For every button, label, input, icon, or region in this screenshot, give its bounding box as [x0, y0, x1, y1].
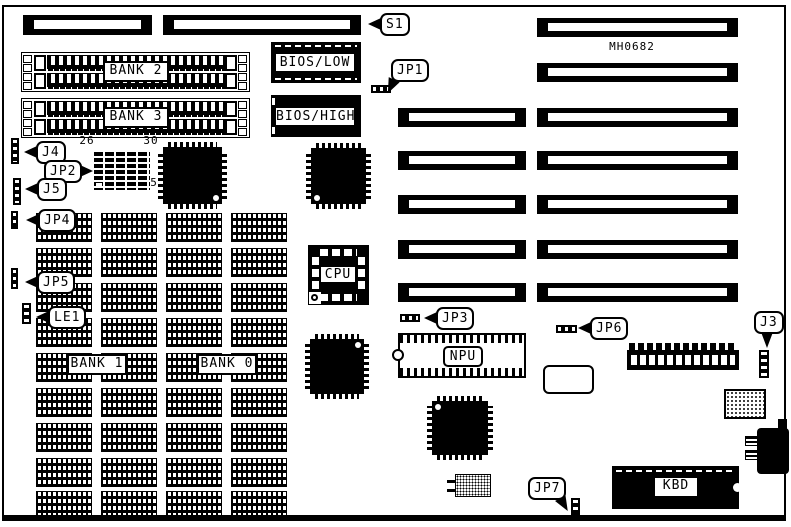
board-code: MH0682 — [600, 41, 664, 53]
callout-s1: S1 — [380, 13, 410, 36]
slot-contact-stripe — [409, 288, 515, 296]
simm-end-clip — [225, 55, 237, 71]
dram-chip — [36, 423, 92, 452]
expansion-slot — [537, 63, 738, 82]
callout-j3: J3 — [754, 311, 784, 334]
qfp-chip — [158, 142, 227, 209]
dram-chip — [166, 423, 222, 452]
kbd-label: KBD — [654, 477, 698, 497]
slot-contact-stripe — [548, 68, 727, 76]
simm-pad — [23, 82, 32, 90]
simm-end-clip — [225, 101, 237, 117]
simm-end-clip — [34, 55, 46, 71]
npu-label: NPU — [443, 346, 483, 367]
simm-pad — [238, 128, 247, 136]
socket-notch — [392, 349, 404, 361]
dram-chip — [101, 458, 157, 487]
slot-contact-stripe — [409, 113, 515, 121]
slot-contact-stripe — [548, 156, 727, 164]
oscillator-socket — [543, 365, 594, 394]
simm-pad — [238, 119, 247, 127]
dash-line — [616, 470, 735, 472]
connector-le1 — [22, 303, 31, 324]
jp2-jumper-block — [94, 152, 150, 190]
chip-notch — [733, 483, 742, 492]
callout-jp7: JP7 — [528, 477, 566, 500]
bios-low-chip: BIOS/LOW — [271, 42, 361, 83]
expansion-slot — [398, 283, 526, 302]
socket-pin-row — [400, 335, 524, 343]
expansion-slot — [398, 151, 526, 170]
simm-socket-bar — [47, 129, 225, 135]
expansion-slot — [537, 195, 738, 214]
dram-chip — [231, 318, 287, 347]
chip-legs — [364, 344, 369, 389]
pin1-notch — [309, 292, 321, 304]
simm-pad — [23, 110, 32, 118]
dram-chip — [231, 388, 287, 417]
socket-contacts — [312, 257, 319, 293]
crystal — [455, 474, 491, 497]
expansion-slot — [537, 151, 738, 170]
cpu-label: CPU — [319, 265, 357, 284]
chip-body — [432, 401, 488, 455]
bank-label: BANK 2 — [103, 61, 169, 82]
socket-contacts — [320, 294, 357, 301]
expansion-slot — [163, 15, 361, 35]
dram-chip — [231, 283, 287, 312]
callout-jp5: JP5 — [37, 271, 75, 294]
slot-contact-stripe — [34, 20, 141, 29]
socket-contacts — [320, 249, 357, 256]
pin1-marker — [96, 183, 102, 187]
socket-pin-row — [400, 368, 524, 376]
chip-legs — [316, 143, 361, 148]
crystal-lead — [447, 489, 456, 492]
dram-chip — [231, 248, 287, 277]
cpu-socket: CPU — [308, 245, 369, 305]
expansion-slot — [537, 283, 738, 302]
dram-chip — [231, 423, 287, 452]
chip-legs — [168, 142, 217, 147]
chip-legs — [222, 152, 227, 199]
callout-jp1: JP1 — [391, 59, 429, 82]
dram-chip — [101, 423, 157, 452]
connector-j5 — [13, 178, 21, 205]
slot-contact-stripe — [174, 20, 350, 29]
expansion-slot — [537, 240, 738, 259]
bios-high-chip: BIOS/HIGH — [271, 95, 361, 137]
connector-shield-tab — [778, 419, 787, 431]
bank0-label: BANK 0 — [197, 354, 257, 375]
slot-contact-stripe — [548, 200, 727, 208]
qfp-chip — [306, 143, 371, 209]
jp2-pin-number-5: 5 — [146, 177, 162, 189]
slot-contact-stripe — [548, 288, 727, 296]
chip-tick — [272, 127, 275, 134]
chip-legs — [316, 204, 361, 209]
callout-jp6: JP6 — [590, 317, 628, 340]
dram-chip — [101, 318, 157, 347]
chip-legs — [366, 153, 371, 199]
callout-tail-j3 — [761, 332, 773, 348]
board-bottom-edge — [2, 515, 786, 521]
slot-contact-stripe — [548, 23, 727, 31]
slot-contact-stripe — [409, 156, 515, 164]
socket-contacts — [358, 257, 365, 293]
pin1-dot — [355, 342, 361, 348]
simm-end-clip — [34, 119, 46, 135]
simm-pad — [23, 101, 32, 109]
keyboard-din-connector — [757, 428, 789, 474]
simm-end-clip — [225, 119, 237, 135]
connector-jp5 — [11, 268, 18, 289]
simm-pad — [238, 55, 247, 63]
dash-line — [275, 78, 357, 80]
chip-legs — [315, 334, 359, 339]
simm-pad — [238, 73, 247, 81]
callout-jp4: JP4 — [38, 209, 76, 232]
jumper-jp3 — [400, 314, 420, 322]
simm-pad — [238, 82, 247, 90]
dram-chip — [101, 388, 157, 417]
dram-chip — [36, 388, 92, 417]
dram-chip — [231, 458, 287, 487]
slot-contact-stripe — [548, 113, 727, 121]
chip-tick — [272, 98, 275, 105]
power-connector-body — [627, 350, 739, 370]
chip-legs — [305, 344, 310, 389]
simm-pad — [23, 55, 32, 63]
chip-legs — [158, 152, 163, 199]
simm-pad — [23, 128, 32, 136]
callout-le1: LE1 — [48, 306, 86, 329]
bios-low-label: BIOS/LOW — [275, 53, 355, 72]
simm-pad — [23, 64, 32, 72]
expansion-slot — [398, 108, 526, 127]
pin1-dot — [314, 195, 320, 201]
connector-j3 — [759, 350, 769, 378]
slot-contact-stripe — [409, 245, 515, 253]
chip-legs — [427, 406, 432, 450]
callout-j5: J5 — [37, 178, 67, 201]
kbd-chip: KBD — [612, 466, 739, 509]
dram-chip — [36, 458, 92, 487]
dram-chip — [101, 283, 157, 312]
expansion-slot — [398, 240, 526, 259]
dram-chip — [166, 318, 222, 347]
slot-contact-stripe — [409, 200, 515, 208]
dram-chip — [166, 248, 222, 277]
simm-pad — [238, 101, 247, 109]
jp2-pin-number-30: 30 — [140, 135, 162, 147]
qfp-chip — [305, 334, 369, 399]
bank-label: BANK 3 — [103, 107, 169, 128]
dram-chip — [101, 248, 157, 277]
jumper-jp6 — [556, 325, 577, 333]
dash-line — [275, 45, 357, 47]
slot-contact-stripe — [548, 245, 727, 253]
chip-legs — [437, 455, 483, 460]
crystal-lead — [447, 480, 456, 483]
bios-high-label: BIOS/HIGH — [275, 107, 355, 126]
jp2-pin-number-26: 26 — [76, 135, 98, 147]
pin1-dot — [213, 195, 219, 201]
connector-jp4 — [11, 211, 18, 229]
chip-legs — [437, 396, 483, 401]
expansion-slot — [537, 108, 738, 127]
callout-jp3: JP3 — [436, 307, 474, 330]
qfp-chip — [427, 396, 493, 460]
simm-end-clip — [34, 73, 46, 89]
bank1-label: BANK 1 — [67, 354, 127, 375]
dram-chip — [166, 388, 222, 417]
chip-legs — [315, 394, 359, 399]
expansion-slot — [23, 15, 152, 35]
dram-chip — [166, 213, 222, 242]
dram-chip — [166, 458, 222, 487]
resistor-network — [724, 389, 766, 419]
chip-legs — [488, 406, 493, 450]
simm-end-clip — [34, 101, 46, 117]
simm-pad — [238, 64, 247, 72]
npu-socket: NPU — [398, 333, 526, 378]
simm-pad — [23, 73, 32, 81]
power-pin-cells — [631, 355, 735, 365]
simm-socket-bar — [47, 83, 225, 89]
power-connector — [627, 343, 739, 370]
dram-chip — [231, 213, 287, 242]
chip-legs — [306, 153, 311, 199]
connector-j4 — [11, 138, 19, 164]
expansion-slot — [537, 18, 738, 37]
pin1-dot — [435, 404, 441, 410]
simm-end-clip — [225, 73, 237, 89]
simm-pad — [238, 110, 247, 118]
simm-pad — [23, 119, 32, 127]
dram-chip — [101, 213, 157, 242]
dram-chip — [166, 283, 222, 312]
motherboard-diagram: BIOS/LOW BIOS/HIGH CPU NPU KBD — [0, 0, 791, 527]
chip-legs — [168, 204, 217, 209]
expansion-slot — [398, 195, 526, 214]
